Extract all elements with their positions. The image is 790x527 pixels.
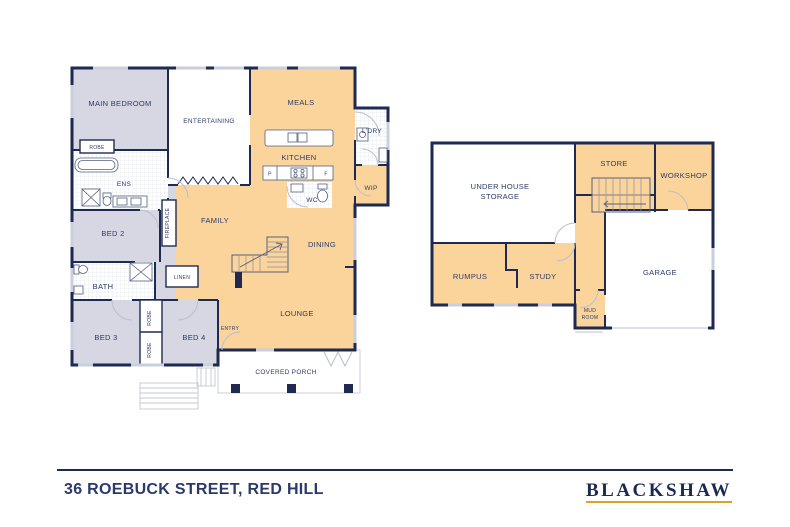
label-robe: ROBE [89,145,105,151]
label-linen: LINEN [174,275,190,281]
label-entertaining: ENTERTAINING [183,118,234,125]
label-lounge: LOUNGE [280,309,313,318]
label-fridge: F [324,172,327,178]
label-dining: DINING [308,240,336,249]
label-fireplace: FIREPLACE [165,207,171,238]
label-bed2: BED 2 [101,229,124,238]
label-pantry: P [268,172,272,178]
upper-floor-plan: MAIN BEDROOM ROBE ENS ENTERTAINING MEALS… [72,68,388,409]
floorplan-page: MAIN BEDROOM ROBE ENS ENTERTAINING MEALS… [0,0,790,527]
label-workshop: WORKSHOP [661,171,708,180]
porch-column [231,384,240,393]
laundry-cupboard-icon [379,148,387,162]
deck-steps [140,368,215,409]
label-under-house-storage: UNDER HOUSE [471,182,530,191]
agency-logo: BLACKSHAW [586,481,732,503]
room-main-bedroom [72,68,168,150]
label-under-house-storage: STORAGE [481,192,520,201]
property-address: 36 ROEBUCK STREET, RED HILL [64,481,324,499]
label-family: FAMILY [201,216,229,225]
label-main-bedroom: MAIN BEDROOM [88,99,151,108]
room-entertaining [168,68,250,185]
label-robe: ROBE [147,310,153,326]
label-wip: WIP [364,185,377,192]
floorplans-drawing: MAIN BEDROOM ROBE ENS ENTERTAINING MEALS… [0,0,790,460]
label-ens: ENS [117,181,132,188]
room-store [575,143,655,195]
label-meals: MEALS [288,98,315,107]
label-bed3: BED 3 [94,333,117,342]
label-kitchen: KITCHEN [281,153,316,162]
porch-column [287,384,296,393]
label-study: STUDY [530,272,557,281]
label-laundry: L'DRY [362,128,382,135]
entry-area [218,300,250,350]
label-mud-room: ROOM [582,315,599,321]
cooktop-icon [291,168,307,178]
porch-column [344,384,353,393]
label-covered-porch: COVERED PORCH [255,369,316,376]
basin-icon [74,286,83,294]
label-bath: BATH [93,282,114,291]
wc-toilet-icon [318,184,327,189]
label-entry: ENTRY [221,326,240,332]
label-mud-room: MUD [584,308,596,314]
label-wc: WC [306,197,317,204]
lower-floor-plan: UNDER HOUSE STORAGE STORE WORKSHOP RUMPU… [432,143,713,332]
room-meals-dining-lounge [250,68,355,350]
label-robe: ROBE [147,342,153,358]
label-rumpus: RUMPUS [453,272,487,281]
label-bed4: BED 4 [182,333,205,342]
label-garage: GARAGE [643,268,677,277]
footer-divider [57,469,733,471]
wc-basin-icon [291,184,303,192]
label-store: STORE [600,159,627,168]
